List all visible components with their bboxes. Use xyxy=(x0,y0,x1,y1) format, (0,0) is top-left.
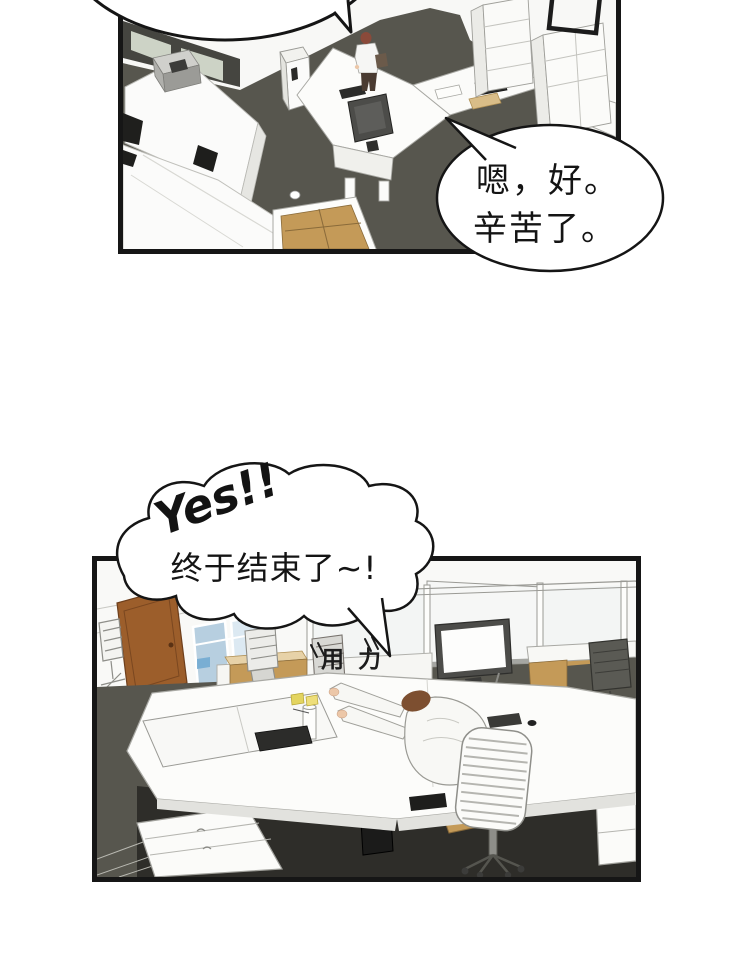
speech-bubble-offpanel xyxy=(58,0,382,56)
thought-tail xyxy=(348,598,390,656)
floor-cup xyxy=(290,191,300,199)
sticky-note xyxy=(306,695,318,706)
thought-line: 终于结束了~! xyxy=(171,549,378,587)
mouse xyxy=(528,720,537,726)
thought-bubble: Yes!! 终于结束了~! xyxy=(98,452,446,664)
comic-page: 用力 嗯，好。 辛苦了。 Yes!! 终于结束了~! xyxy=(0,0,740,963)
foreground-desk xyxy=(127,673,636,831)
speech-line-1: 嗯，好。 xyxy=(476,161,620,201)
speech-line-2: 辛苦了。 xyxy=(473,209,617,249)
sticky-note xyxy=(291,693,304,705)
speech-bubble: 嗯，好。 辛苦了。 xyxy=(432,112,672,290)
